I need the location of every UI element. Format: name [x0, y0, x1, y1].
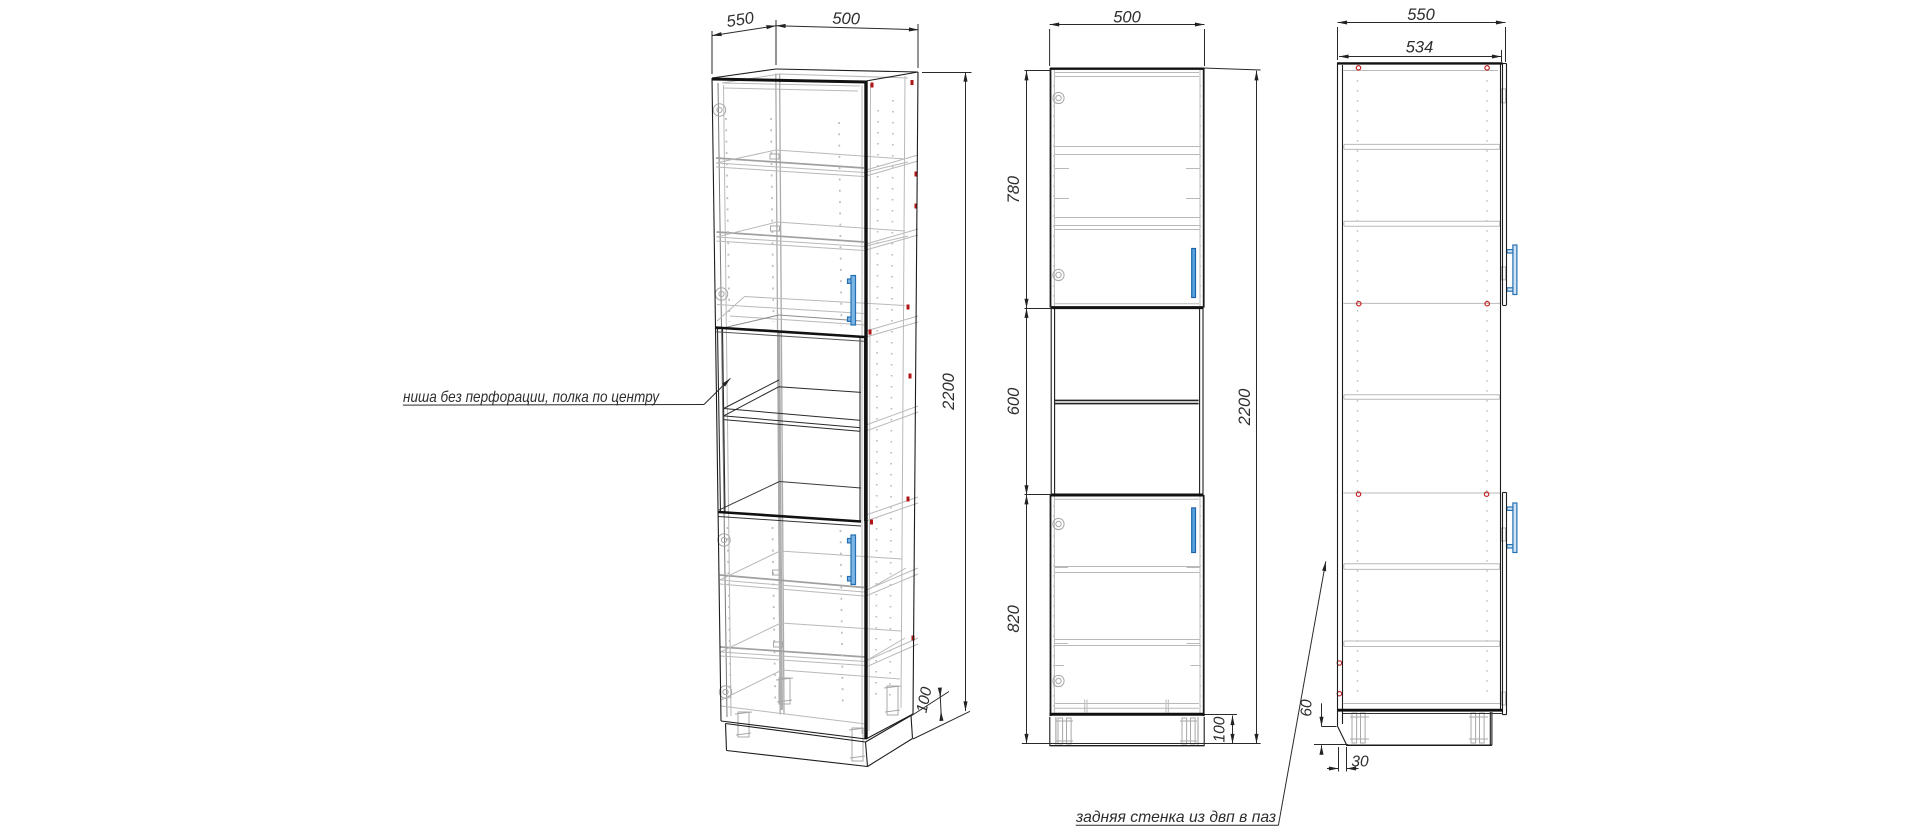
svg-text:500: 500	[1113, 9, 1141, 27]
svg-text:100: 100	[914, 685, 936, 714]
svg-text:ниша без перфорации, полка по: ниша без перфорации, полка по центру	[403, 389, 660, 406]
svg-text:820: 820	[1005, 604, 1023, 632]
svg-text:100: 100	[1212, 716, 1229, 742]
svg-text:2200: 2200	[940, 372, 958, 411]
svg-text:30: 30	[1351, 754, 1369, 771]
svg-text:2200: 2200	[1236, 388, 1254, 427]
svg-text:550: 550	[725, 9, 756, 31]
svg-text:500: 500	[832, 10, 861, 29]
svg-text:534: 534	[1406, 38, 1434, 56]
svg-text:600: 600	[1005, 387, 1023, 415]
svg-text:задняя стенка из двп в паз: задняя стенка из двп в паз	[1075, 809, 1276, 826]
svg-text:780: 780	[1005, 175, 1023, 203]
svg-text:550: 550	[1407, 6, 1435, 24]
